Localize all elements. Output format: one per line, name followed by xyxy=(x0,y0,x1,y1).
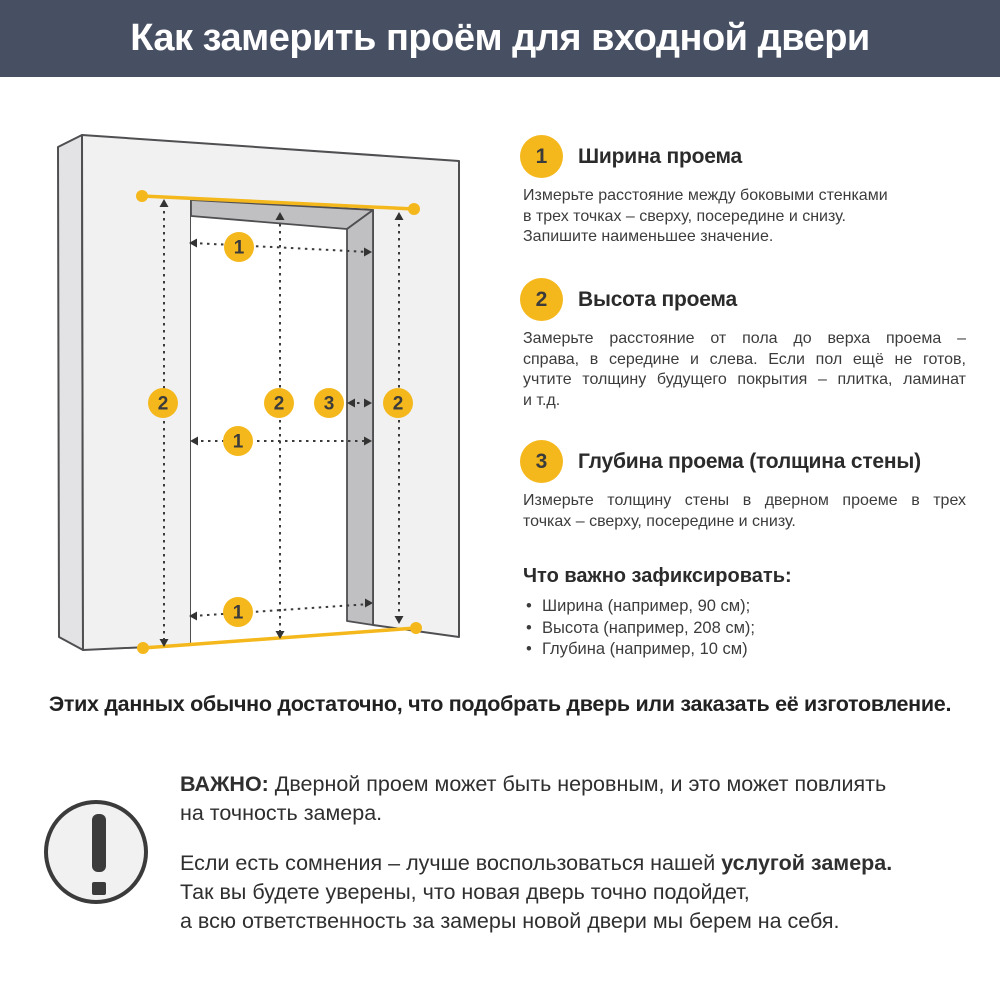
svg-text:2: 2 xyxy=(393,394,404,415)
summary-line: Этих данных обычно достаточно, что подоб… xyxy=(0,692,1000,717)
tape-dot xyxy=(137,642,149,654)
step-header: 2 Высота проема xyxy=(520,278,966,321)
checklist-item: Глубина (например, 10 см) xyxy=(523,639,966,661)
svg-text:1: 1 xyxy=(233,432,244,453)
wall-side-face xyxy=(58,135,83,650)
step-description: Измерьте расстояние между боковыми стенк… xyxy=(523,186,966,248)
checklist: Ширина (например, 90 см); Высота (наприм… xyxy=(523,596,966,661)
checklist-item: Ширина (например, 90 см); xyxy=(523,596,966,618)
measure-service-label: услугой замера. xyxy=(721,851,892,875)
step-number-badge: 1 xyxy=(520,135,563,178)
step-number-badge: 2 xyxy=(520,278,563,321)
tape-dot xyxy=(408,203,420,215)
badge-depth: 3 xyxy=(314,388,344,418)
infographic-page: { "header": { "title": "Как замерить про… xyxy=(0,0,1000,1000)
badge-height-left: 2 xyxy=(148,388,178,418)
badge-width-bottom: 1 xyxy=(223,597,253,627)
checklist-title: Что важно зафиксировать: xyxy=(523,565,792,588)
badge-width-middle: 1 xyxy=(223,426,253,456)
step-height: 2 Высота проема Замерьте расстояние от п… xyxy=(520,278,966,321)
badge-width-top: 1 xyxy=(224,232,254,262)
step-depth: 3 Глубина проема (толщина стены) Измерьт… xyxy=(520,440,966,483)
exclamation-bar xyxy=(92,814,106,872)
important-label: ВАЖНО: xyxy=(180,772,269,796)
step-header: 3 Глубина проема (толщина стены) xyxy=(520,440,966,483)
instructions-column: 1 Ширина проема Измерьте расстояние межд… xyxy=(520,135,966,695)
exclamation-dot xyxy=(92,882,106,895)
step-number-badge: 3 xyxy=(520,440,563,483)
step-title: Глубина проема (толщина стены) xyxy=(578,450,921,474)
page-title: Как замерить проём для входной двери xyxy=(130,17,870,60)
step-title: Высота проема xyxy=(578,288,737,312)
exclamation-icon xyxy=(44,800,148,904)
tape-dot xyxy=(136,190,148,202)
checklist-item: Высота (например, 208 см); xyxy=(523,618,966,640)
important-paragraph-1: ВАЖНО: Дверной проем может быть неровным… xyxy=(180,770,950,828)
tape-dot xyxy=(410,622,422,634)
svg-text:3: 3 xyxy=(324,394,335,415)
step-title: Ширина проема xyxy=(578,145,742,169)
svg-text:2: 2 xyxy=(274,394,285,415)
step-header: 1 Ширина проема xyxy=(520,135,966,178)
step-description: Замерьте расстояние от пола до верха про… xyxy=(523,329,966,411)
doorway-measurement-diagram: 1 1 1 2 2 3 2 xyxy=(30,120,520,690)
important-paragraph-2: Если есть сомнения – лучше воспользовать… xyxy=(180,849,950,936)
right-reveal-face xyxy=(347,210,373,625)
step-description: Измерьте толщину стены в дверном проеме … xyxy=(523,491,966,532)
svg-text:1: 1 xyxy=(234,238,245,259)
badge-height-right: 2 xyxy=(383,388,413,418)
important-note: ВАЖНО: Дверной проем может быть неровным… xyxy=(180,770,950,936)
svg-text:1: 1 xyxy=(233,603,244,624)
badge-height-center: 2 xyxy=(264,388,294,418)
svg-text:2: 2 xyxy=(158,394,169,415)
step-width: 1 Ширина проема Измерьте расстояние межд… xyxy=(520,135,966,178)
header-banner: Как замерить проём для входной двери xyxy=(0,0,1000,77)
door-opening xyxy=(191,216,347,651)
